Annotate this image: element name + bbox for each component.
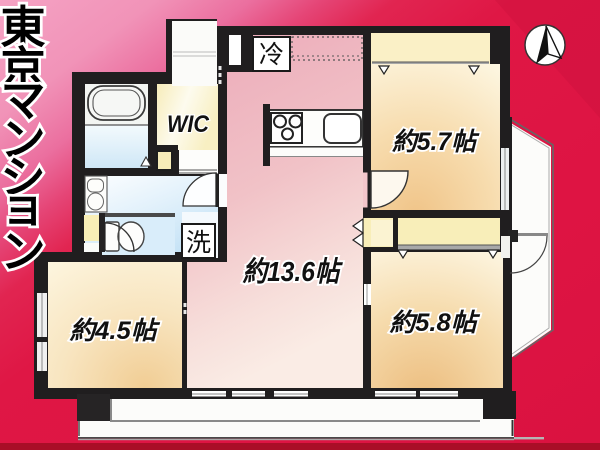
svg-text:約5.7帖: 約5.7帖	[392, 128, 480, 156]
svg-text:ョ: ョ	[0, 181, 45, 232]
svg-text:約4.5帖: 約4.5帖	[70, 317, 161, 345]
svg-text:約5.8帖: 約5.8帖	[390, 309, 481, 337]
svg-text:冷: 冷	[259, 41, 284, 69]
svg-text:WIC: WIC	[167, 111, 210, 138]
svg-text:ン: ン	[0, 226, 45, 277]
svg-text:洗: 洗	[186, 229, 211, 257]
svg-text:約13.6帖: 約13.6帖	[243, 256, 344, 287]
